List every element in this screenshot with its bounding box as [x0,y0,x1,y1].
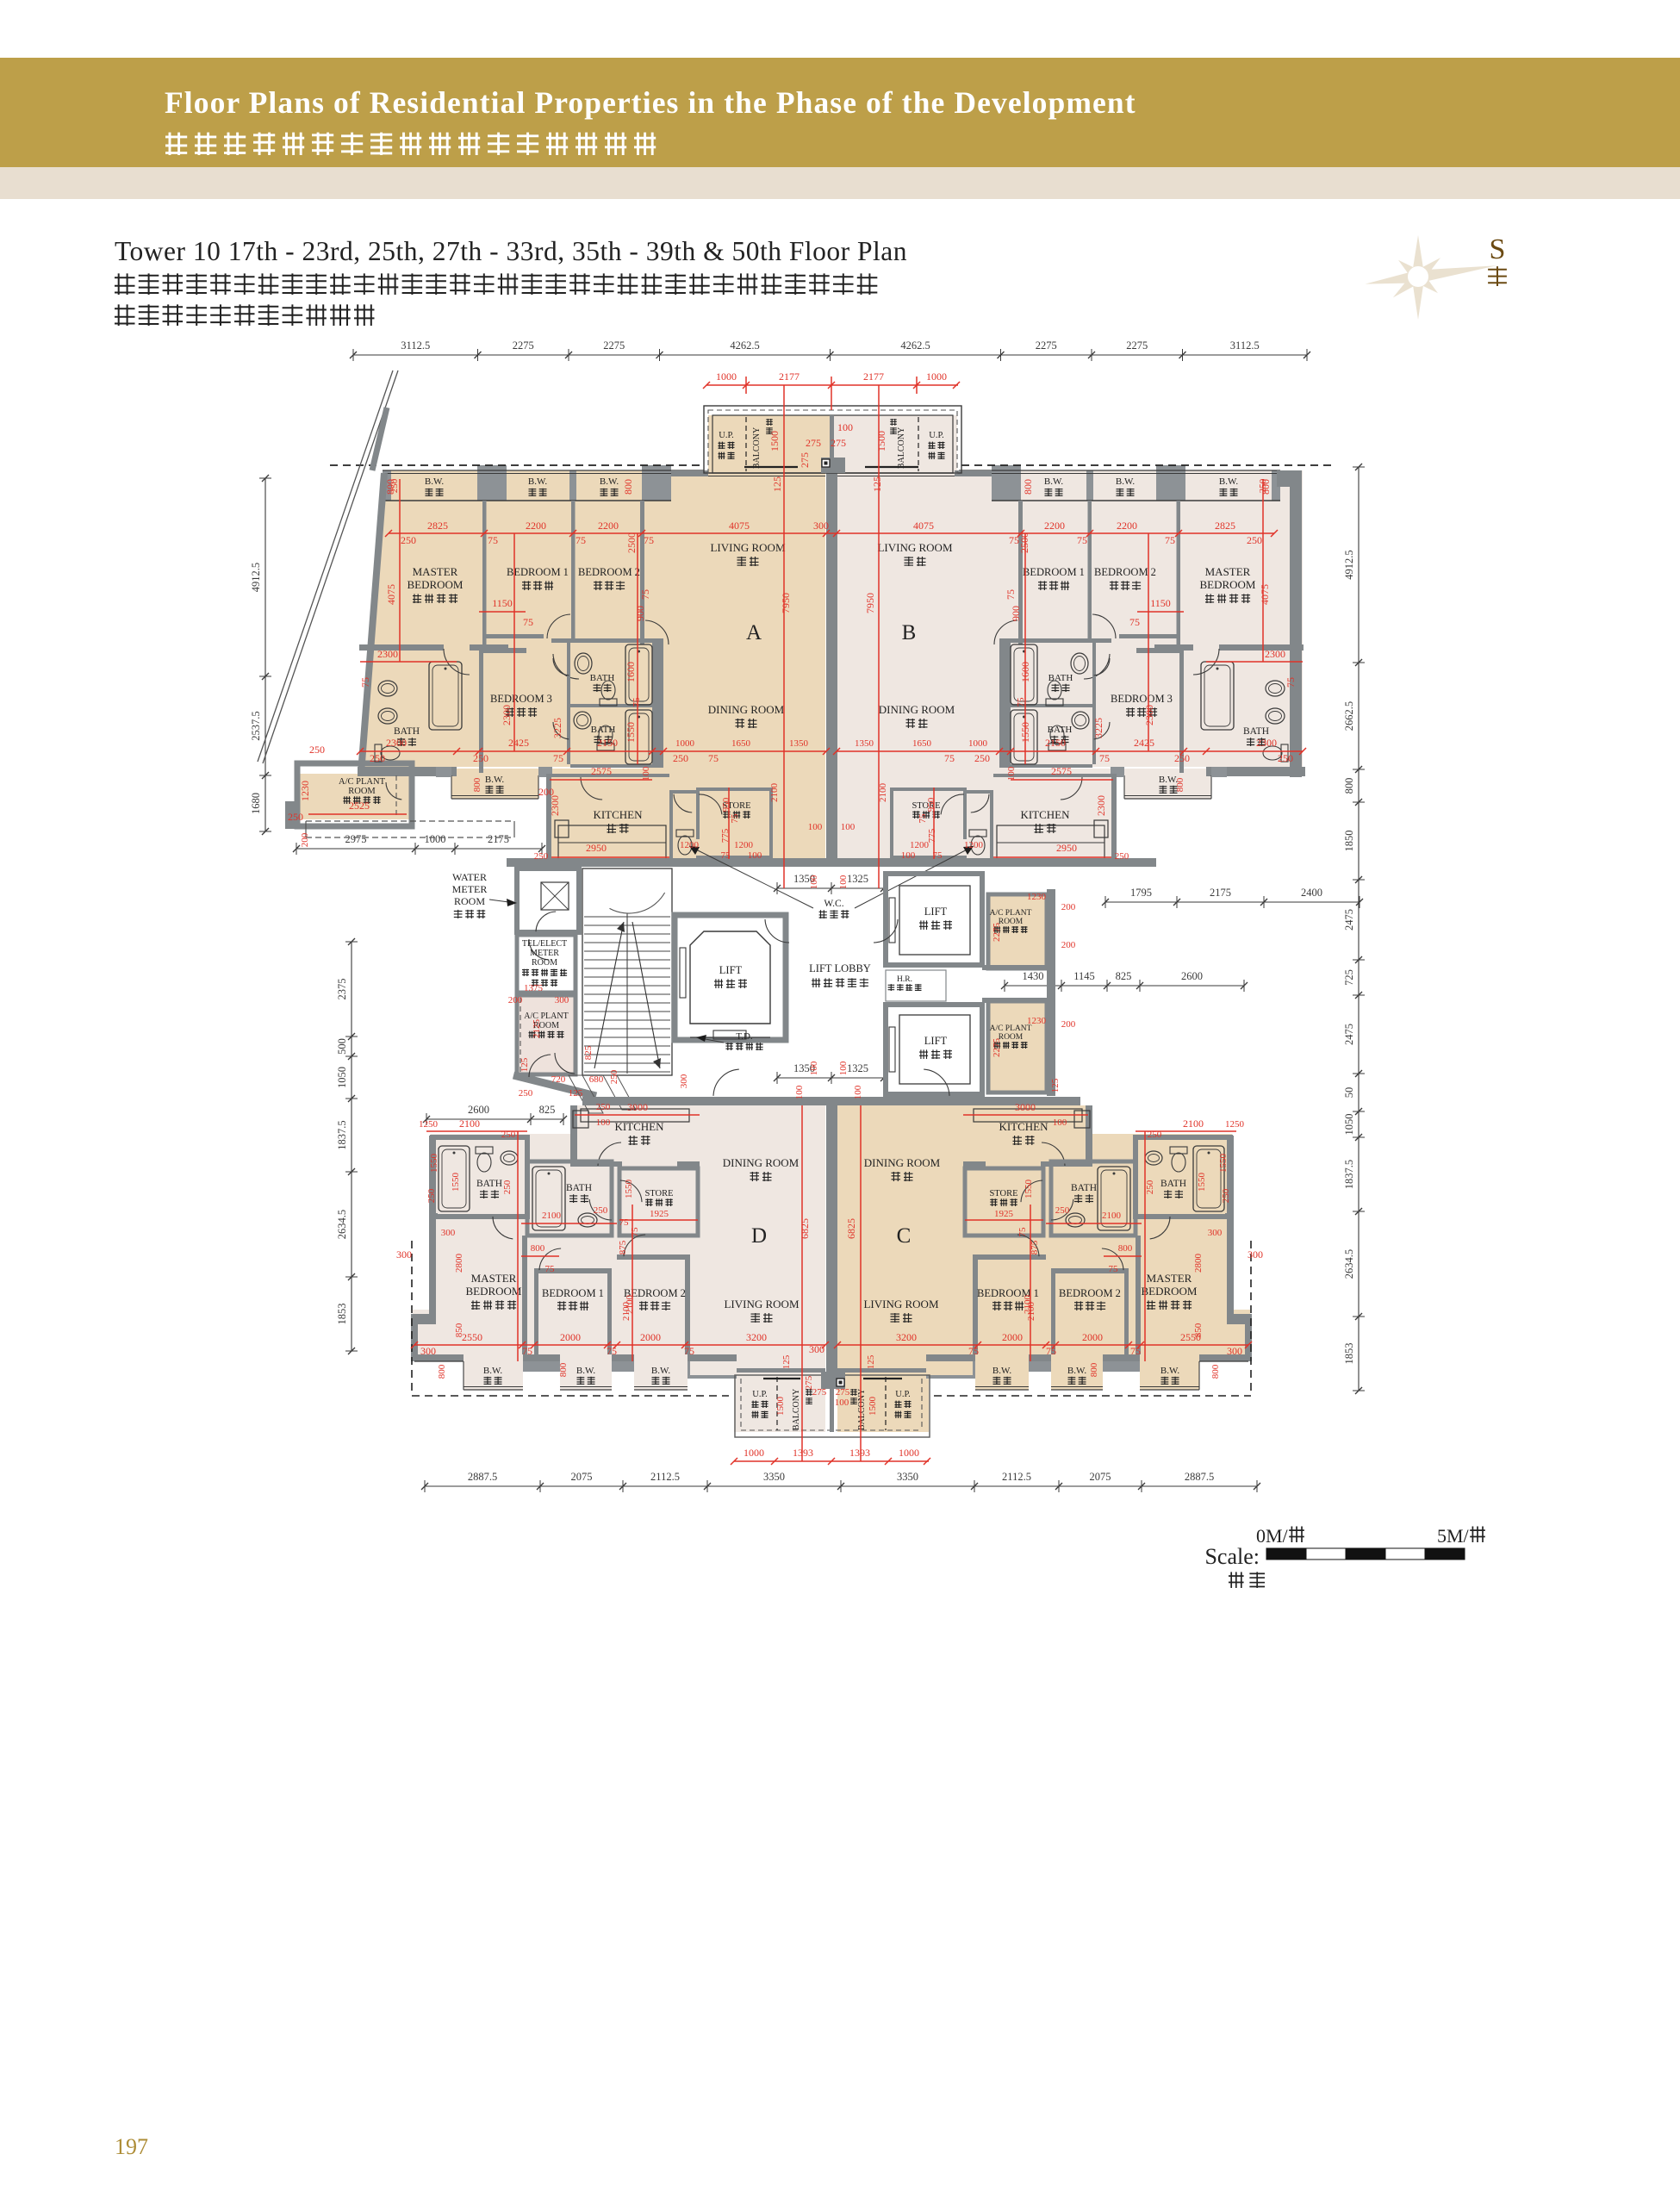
svg-text:200: 200 [538,786,554,798]
svg-text:4075: 4075 [729,520,750,532]
svg-text:U.P.: U.P. [752,1390,768,1399]
svg-text:2300: 2300 [1256,737,1277,749]
svg-text:2275: 2275 [603,339,625,352]
svg-text:775: 775 [927,828,937,843]
svg-text:250: 250 [288,811,303,823]
svg-text:275: 275 [812,1387,827,1398]
svg-text:ROOM: ROOM [999,1033,1024,1042]
svg-text:2400: 2400 [1301,887,1322,899]
svg-text:75: 75 [639,589,651,600]
svg-text:125: 125 [781,1354,792,1369]
svg-text:2500: 2500 [625,532,638,553]
svg-text:LIFT LOBBY: LIFT LOBBY [809,962,871,974]
svg-text:1550: 1550 [1197,1173,1207,1192]
svg-text:2200: 2200 [1044,520,1065,532]
svg-text:1680: 1680 [250,793,262,814]
svg-text:125: 125 [569,1088,583,1099]
svg-text:ROOM: ROOM [999,918,1024,926]
svg-text:75: 75 [1005,589,1017,600]
svg-text:LIFT: LIFT [719,964,743,976]
svg-text:2275: 2275 [992,923,1002,943]
svg-text:1000: 1000 [899,1447,919,1459]
svg-text:B.W.: B.W. [992,1366,1011,1376]
svg-text:1000: 1000 [675,738,695,749]
svg-text:2100: 2100 [878,783,888,803]
svg-text:LIFT: LIFT [924,1035,948,1047]
svg-text:1550: 1550 [625,722,637,743]
svg-text:200: 200 [508,995,523,1005]
svg-text:1230: 1230 [1027,1016,1047,1026]
svg-text:300: 300 [420,1345,436,1357]
svg-text:300: 300 [396,1248,412,1261]
svg-text:2300: 2300 [1143,705,1155,725]
svg-text:B.W.: B.W. [425,476,444,487]
svg-text:2275: 2275 [513,339,534,352]
svg-text:2300: 2300 [501,705,513,725]
svg-text:BEDROOM: BEDROOM [1199,578,1255,591]
svg-text:2275: 2275 [1036,339,1057,352]
svg-text:2100: 2100 [542,1211,562,1221]
svg-text:100: 100 [837,421,853,433]
svg-text:2800: 2800 [1193,1254,1204,1273]
svg-text:6825: 6825 [799,1218,811,1239]
svg-text:B: B [902,621,917,644]
svg-text:2525: 2525 [349,800,370,812]
svg-text:0M/: 0M/ [1256,1525,1289,1547]
svg-text:125: 125 [1050,1078,1061,1093]
svg-text:250: 250 [1148,1130,1162,1140]
svg-text:950: 950 [926,797,936,812]
svg-text:A: A [746,621,762,644]
svg-text:1550: 1550 [429,1154,439,1173]
svg-text:1000: 1000 [744,1447,764,1459]
svg-text:875: 875 [618,1240,628,1254]
svg-text:MASTER: MASTER [413,565,458,578]
svg-text:825: 825 [583,1045,594,1060]
svg-text:2112.5: 2112.5 [650,1471,680,1483]
svg-text:75: 75 [630,1227,640,1237]
svg-text:200: 200 [1061,902,1076,912]
svg-text:2000: 2000 [1002,1331,1023,1343]
svg-text:2200: 2200 [598,520,619,532]
svg-text:B.W.: B.W. [600,476,619,487]
svg-text:BATH: BATH [1243,726,1269,737]
svg-text:BATH: BATH [1071,1183,1097,1193]
svg-text:825: 825 [539,1104,556,1116]
svg-text:1050: 1050 [336,1067,348,1088]
svg-text:1230: 1230 [299,781,311,801]
svg-text:75: 75 [359,677,371,688]
svg-text:A/C PLANT: A/C PLANT [524,1012,568,1021]
svg-text:100: 100 [794,1085,805,1099]
svg-text:MASTER: MASTER [1205,565,1251,578]
svg-text:2300: 2300 [377,648,398,660]
svg-text:2550: 2550 [462,1331,482,1343]
svg-text:WATER: WATER [452,871,487,883]
svg-text:1925: 1925 [650,1209,669,1219]
svg-text:2177: 2177 [779,370,800,383]
svg-text:1550: 1550 [1024,1180,1034,1199]
svg-text:W.C.: W.C. [824,899,843,909]
svg-text:3000: 3000 [627,1101,648,1113]
svg-text:1145: 1145 [1073,970,1095,982]
svg-text:300: 300 [809,1343,824,1355]
svg-text:2075: 2075 [1090,1471,1111,1483]
svg-text:LIVING ROOM: LIVING ROOM [863,1298,938,1310]
svg-text:1550: 1550 [451,1173,461,1192]
svg-text:4075: 4075 [1259,584,1271,605]
svg-text:2177: 2177 [863,370,884,383]
svg-text:100: 100 [1053,1117,1067,1128]
svg-text:800: 800 [1343,778,1355,794]
svg-text:75: 75 [730,813,740,824]
svg-text:4912.5: 4912.5 [250,563,262,592]
svg-text:2575: 2575 [1051,765,1072,777]
svg-text:100: 100 [835,1398,849,1408]
svg-text:2575: 2575 [591,765,612,777]
svg-text:100: 100 [838,1061,849,1075]
svg-text:2475: 2475 [1343,1024,1355,1045]
svg-text:4262.5: 4262.5 [730,339,759,352]
svg-text:75: 75 [1016,697,1026,707]
svg-text:75: 75 [576,534,586,546]
svg-text:75: 75 [1077,534,1087,546]
svg-text:75: 75 [1285,677,1297,688]
svg-text:4075: 4075 [385,584,397,605]
svg-text:2950: 2950 [1056,842,1077,854]
svg-text:B.W.: B.W. [1116,476,1135,487]
svg-text:B.W.: B.W. [651,1366,670,1376]
svg-text:DINING ROOM: DINING ROOM [864,1156,941,1169]
svg-text:1500: 1500 [768,431,781,451]
svg-text:100: 100 [838,875,849,889]
svg-text:2825: 2825 [1215,520,1235,532]
svg-text:250: 250 [370,752,385,764]
svg-text:3112.5: 3112.5 [1230,339,1260,352]
svg-text:2175: 2175 [1210,887,1231,899]
svg-text:U.P.: U.P. [719,431,734,440]
svg-text:2100: 2100 [1183,1117,1204,1130]
svg-text:250: 250 [426,1188,437,1203]
svg-text:4075: 4075 [913,520,934,532]
svg-text:2150: 2150 [1045,737,1066,749]
svg-text:BEDROOM 1: BEDROOM 1 [542,1287,604,1299]
svg-text:2425: 2425 [1134,737,1154,749]
svg-text:125: 125 [520,1057,530,1072]
svg-text:3225: 3225 [551,718,563,738]
svg-text:1430: 1430 [1023,970,1044,982]
svg-text:200: 200 [300,832,310,847]
svg-text:5M/: 5M/ [1437,1525,1470,1547]
svg-text:6825: 6825 [845,1218,857,1239]
svg-text:250: 250 [596,1102,611,1112]
svg-text:1150: 1150 [1150,597,1171,609]
svg-text:1650: 1650 [912,738,932,749]
svg-text:800: 800 [1022,479,1034,495]
svg-text:BATH: BATH [1160,1179,1186,1189]
svg-text:680: 680 [589,1074,604,1085]
svg-text:1000: 1000 [425,833,446,845]
svg-text:1837.5: 1837.5 [1343,1160,1355,1189]
svg-text:BALCONY: BALCONY [857,1389,867,1430]
svg-text:LIVING ROOM: LIVING ROOM [877,541,952,554]
svg-text:75: 75 [708,752,719,764]
svg-text:1550: 1550 [1019,722,1031,743]
svg-text:H.R.: H.R. [897,975,912,984]
svg-text:1250: 1250 [1225,1119,1245,1130]
svg-text:BEDROOM 1: BEDROOM 1 [1023,566,1085,578]
svg-text:DINING ROOM: DINING ROOM [879,703,955,716]
svg-text:75: 75 [1099,752,1110,764]
svg-text:BATH: BATH [566,1183,592,1193]
svg-text:BEDROOM: BEDROOM [407,578,463,591]
svg-text:100: 100 [809,1061,819,1075]
svg-text:250: 250 [1174,752,1190,764]
svg-text:75: 75 [607,1345,617,1357]
svg-text:3350: 3350 [897,1471,918,1483]
svg-text:800: 800 [1175,777,1185,792]
svg-text:B.W.: B.W. [485,775,504,785]
svg-text:75: 75 [944,752,955,764]
svg-text:800: 800 [622,479,634,495]
svg-text:2100: 2100 [1102,1211,1122,1221]
svg-text:1550: 1550 [624,1180,634,1199]
svg-text:1925: 1925 [994,1209,1014,1219]
svg-text:B.W.: B.W. [576,1366,595,1376]
svg-text:300: 300 [1208,1228,1223,1238]
svg-text:LIFT: LIFT [924,906,948,918]
svg-text:2550: 2550 [1180,1331,1201,1343]
svg-text:300: 300 [679,1074,689,1088]
svg-text:METER: METER [452,883,488,895]
svg-text:275: 275 [831,437,846,449]
svg-text:250: 250 [1055,1205,1070,1216]
svg-text:2150: 2150 [597,737,618,749]
svg-text:100: 100 [808,822,823,832]
svg-text:100: 100 [853,1085,863,1099]
svg-text:75: 75 [721,850,731,861]
svg-text:100: 100 [748,850,762,861]
svg-text:T.D.: T.D. [736,1031,753,1042]
svg-text:75: 75 [523,616,533,628]
svg-text:7950: 7950 [780,593,792,613]
svg-text:1325: 1325 [847,1062,868,1074]
svg-text:250: 250 [673,752,688,764]
svg-text:2000: 2000 [560,1331,581,1343]
svg-text:2300: 2300 [1095,795,1107,816]
svg-text:1050: 1050 [1343,1114,1355,1136]
svg-text:2634.5: 2634.5 [1343,1249,1355,1279]
svg-text:BALCONY: BALCONY [792,1389,801,1430]
svg-text:S: S [1490,233,1506,265]
svg-text:75: 75 [1165,534,1175,546]
svg-text:2800: 2800 [454,1254,464,1273]
svg-text:2537.5: 2537.5 [250,711,262,740]
svg-text:BATH: BATH [394,726,420,737]
svg-text:B.W.: B.W. [1067,1366,1086,1376]
svg-text:720: 720 [551,1074,566,1085]
svg-text:800: 800 [472,777,482,792]
svg-text:4262.5: 4262.5 [900,339,930,352]
svg-text:2000: 2000 [640,1331,661,1343]
svg-text:2125: 2125 [532,1019,542,1039]
svg-text:1393: 1393 [793,1447,813,1459]
svg-text:75: 75 [684,1345,694,1357]
svg-text:U.P.: U.P. [929,431,944,440]
svg-text:300: 300 [441,1228,456,1238]
svg-text:1000: 1000 [968,738,988,749]
svg-text:75: 75 [1046,1345,1056,1357]
svg-text:A/C PLANT: A/C PLANT [990,1024,1032,1033]
svg-text:1500: 1500 [868,1397,878,1416]
svg-text:275: 275 [836,1387,850,1398]
svg-text:100: 100 [1006,766,1017,781]
svg-text:1650: 1650 [731,738,751,749]
svg-text:1230: 1230 [1027,892,1047,902]
svg-text:2300: 2300 [386,737,407,749]
svg-text:2300: 2300 [549,795,561,816]
svg-text:BALCONY: BALCONY [752,427,762,469]
svg-text:3350: 3350 [763,1471,785,1483]
svg-text:1325: 1325 [847,873,868,885]
svg-text:2662.5: 2662.5 [1343,701,1355,731]
svg-text:D: D [751,1224,767,1248]
svg-text:STORE: STORE [644,1189,673,1198]
svg-text:250: 250 [534,851,549,862]
svg-text:3200: 3200 [896,1331,917,1343]
svg-text:950: 950 [721,797,731,812]
svg-text:250: 250 [594,1205,608,1216]
svg-text:2075: 2075 [571,1471,593,1483]
svg-text:2887.5: 2887.5 [468,1471,497,1483]
svg-text:250: 250 [473,752,488,764]
svg-text:250: 250 [1278,752,1293,764]
svg-text:A/C PLANT: A/C PLANT [990,909,1032,918]
svg-text:BEDROOM 2: BEDROOM 2 [1094,566,1156,578]
svg-text:BEDROOM 1: BEDROOM 1 [507,566,569,578]
svg-text:MASTER: MASTER [1147,1272,1192,1285]
svg-text:2100: 2100 [459,1117,480,1130]
svg-text:Floor Plans of Residential Pro: Floor Plans of Residential Properties in… [165,85,1136,120]
svg-text:2200: 2200 [1117,520,1137,532]
svg-text:1375: 1375 [524,983,544,993]
svg-text:2600: 2600 [1181,970,1203,982]
svg-text:3225: 3225 [1092,718,1104,738]
svg-text:875: 875 [1030,1240,1040,1254]
svg-text:250: 250 [309,744,325,756]
svg-text:B.W.: B.W. [483,1366,502,1376]
svg-text:250: 250 [1247,534,1262,546]
svg-text:3000: 3000 [1015,1101,1036,1113]
svg-text:250: 250 [1221,1188,1231,1203]
svg-text:1350: 1350 [789,738,809,749]
svg-text:ROOM: ROOM [348,787,376,796]
svg-text:3200: 3200 [746,1331,767,1343]
svg-text:75: 75 [933,850,943,861]
svg-text:B.W.: B.W. [1044,476,1063,487]
svg-text:75: 75 [644,534,654,546]
svg-text:125: 125 [871,476,883,492]
svg-text:75: 75 [619,1217,630,1228]
svg-text:100: 100 [809,875,819,889]
svg-text:1500: 1500 [775,1397,786,1416]
svg-text:800: 800 [1089,1362,1099,1377]
svg-text:2112.5: 2112.5 [1002,1471,1031,1483]
svg-text:1853: 1853 [336,1304,348,1325]
svg-text:METER: METER [530,949,559,958]
svg-text:1853: 1853 [1343,1343,1355,1365]
svg-text:C: C [897,1224,912,1248]
svg-text:2634.5: 2634.5 [336,1210,348,1239]
svg-text:1600: 1600 [625,662,637,682]
svg-text:900: 900 [1010,606,1022,621]
svg-text:725: 725 [1343,969,1355,986]
svg-text:2100: 2100 [1026,1302,1036,1322]
svg-text:3112.5: 3112.5 [401,339,430,352]
svg-text:75: 75 [632,697,642,707]
svg-text:1000: 1000 [716,370,737,383]
svg-text:200: 200 [1061,940,1076,950]
svg-text:75: 75 [545,1264,556,1274]
svg-text:1550: 1550 [1218,1154,1229,1173]
svg-text:2100: 2100 [769,783,780,803]
svg-text:800: 800 [531,1243,545,1254]
svg-text:LIVING ROOM: LIVING ROOM [724,1298,799,1310]
svg-text:825: 825 [1116,970,1132,982]
svg-text:A/C PLANT: A/C PLANT [339,777,386,787]
svg-text:100: 100 [841,822,856,832]
svg-text:BALCONY: BALCONY [897,427,906,469]
svg-text:BEDROOM 3: BEDROOM 3 [490,693,552,705]
svg-text:1600: 1600 [1019,662,1031,682]
svg-text:2200: 2200 [526,520,546,532]
svg-text:Scale:: Scale: [1204,1544,1260,1569]
svg-text:125: 125 [866,1354,876,1369]
svg-text:50: 50 [1343,1087,1355,1099]
svg-text:1200: 1200 [680,840,700,850]
svg-text:2887.5: 2887.5 [1185,1471,1214,1483]
svg-text:275: 275 [806,437,821,449]
svg-text:2275: 2275 [1126,339,1148,352]
svg-text:KITCHEN: KITCHEN [999,1120,1048,1133]
svg-text:200: 200 [1061,1019,1076,1030]
svg-text:75: 75 [918,813,928,824]
svg-text:2175: 2175 [488,833,509,845]
svg-text:2600: 2600 [468,1104,489,1116]
svg-text:75: 75 [488,534,498,546]
svg-text:LIVING ROOM: LIVING ROOM [710,541,785,554]
svg-text:BEDROOM: BEDROOM [465,1285,521,1298]
svg-text:KITCHEN: KITCHEN [593,808,643,821]
svg-text:1250: 1250 [419,1119,439,1130]
svg-text:STORE: STORE [989,1189,1017,1198]
svg-text:900: 900 [634,606,646,621]
svg-text:DINING ROOM: DINING ROOM [723,1156,800,1169]
svg-text:2100: 2100 [621,1302,632,1322]
svg-text:250: 250 [1145,1180,1155,1194]
svg-text:250: 250 [1258,478,1268,493]
svg-text:2300: 2300 [1265,648,1285,660]
svg-text:BEDROOM 2: BEDROOM 2 [578,566,640,578]
svg-text:1500: 1500 [875,431,887,451]
svg-text:75: 75 [1129,616,1140,628]
svg-text:500: 500 [336,1038,348,1055]
svg-text:2000: 2000 [1082,1331,1103,1343]
svg-text:DINING ROOM: DINING ROOM [708,703,785,716]
svg-text:250: 250 [389,478,400,493]
svg-text:2425: 2425 [508,737,529,749]
svg-text:2975: 2975 [345,833,367,845]
